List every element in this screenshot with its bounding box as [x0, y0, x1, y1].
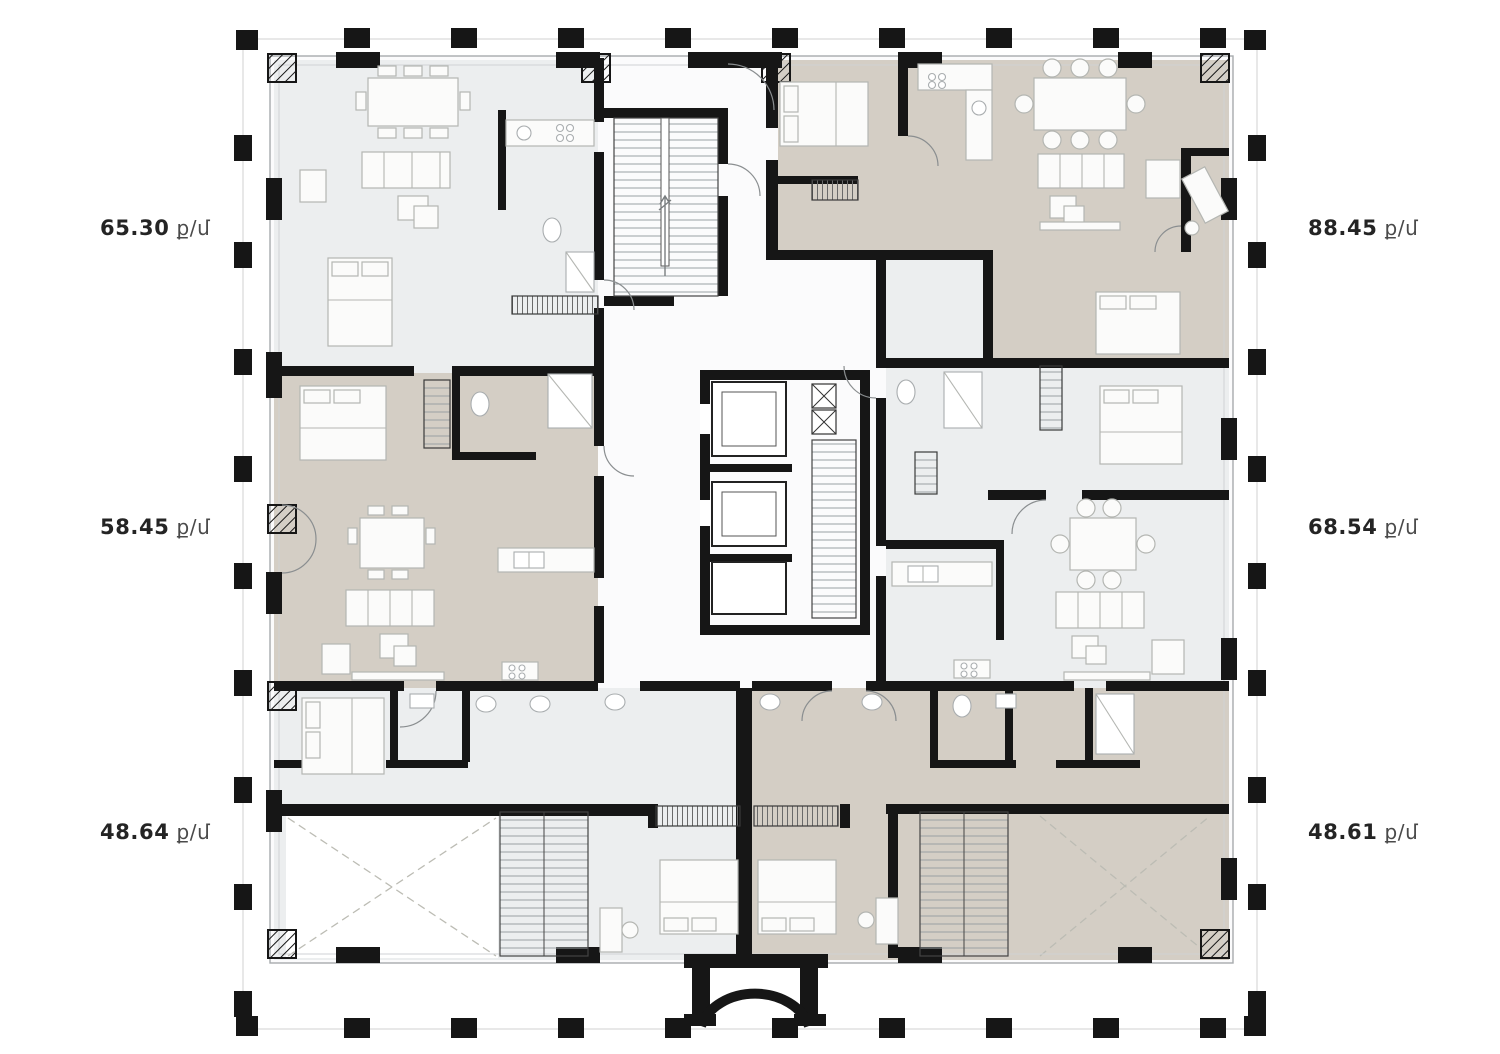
void-area-bottom-left — [286, 816, 498, 958]
area-value: 65.30 — [100, 216, 169, 240]
area-unit: ք/մ — [1384, 515, 1418, 539]
area-unit: ք/մ — [1384, 216, 1418, 240]
floor-plan: 65.30ք/մ 58.45ք/մ 48.64ք/մ 88.45ք/մ 68.5… — [0, 0, 1500, 1050]
area-value: 68.54 — [1308, 515, 1377, 539]
floor-plan-svg — [0, 0, 1500, 1050]
area-label-middle-right: 68.54ք/մ — [1308, 515, 1418, 539]
area-unit: ք/մ — [1384, 820, 1418, 844]
area-label-middle-left: 58.45ք/մ — [100, 515, 210, 539]
area-value: 88.45 — [1308, 216, 1377, 240]
area-label-top-right: 88.45ք/մ — [1308, 216, 1418, 240]
area-label-top-left: 65.30ք/մ — [100, 216, 210, 240]
area-label-bottom-right: 48.61ք/մ — [1308, 820, 1418, 844]
area-unit: ք/մ — [176, 515, 210, 539]
staircase-core — [614, 118, 718, 296]
area-unit: ք/մ — [176, 820, 210, 844]
area-value: 48.64 — [100, 820, 169, 844]
area-unit: ք/մ — [176, 216, 210, 240]
area-value: 48.61 — [1308, 820, 1377, 844]
elevator-core — [700, 382, 856, 618]
area-label-bottom-left: 48.64ք/մ — [100, 820, 210, 844]
area-value: 58.45 — [100, 515, 169, 539]
